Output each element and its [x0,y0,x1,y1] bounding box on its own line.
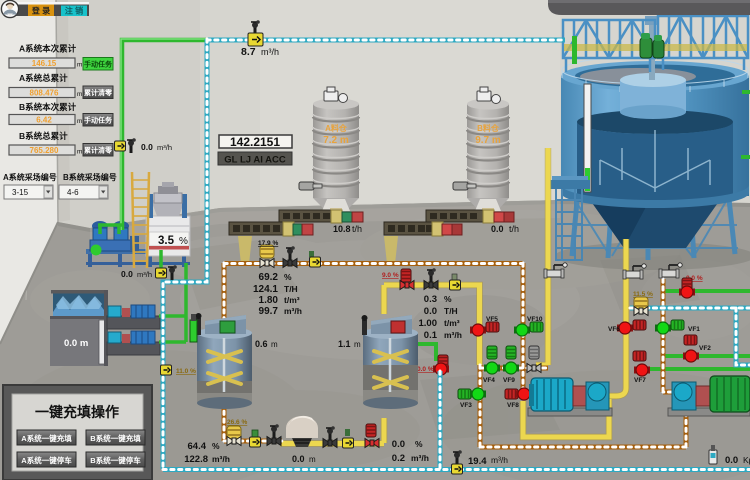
svg-text:A系统一键充填: A系统一键充填 [21,433,72,443]
svg-text:m³/h: m³/h [212,454,230,464]
svg-text:0.0: 0.0 [141,142,153,152]
svg-text:m³/h: m³/h [261,47,279,57]
svg-text:t/h: t/h [352,224,362,234]
svg-text:B系统采场编号: B系统采场编号 [63,172,117,182]
svg-text:0.0: 0.0 [725,455,738,466]
svg-text:VF10: VF10 [527,316,543,323]
svg-text:B系统一键充填: B系统一键充填 [90,433,141,443]
svg-text:t/m³: t/m³ [284,295,300,305]
svg-text:808.476: 808.476 [30,89,59,98]
svg-text:m³/h: m³/h [444,330,462,340]
svg-text:累计清零: 累计清零 [84,88,113,97]
svg-text:m³/h: m³/h [491,455,508,465]
svg-text:3.5: 3.5 [158,235,175,247]
svg-text:%: % [444,294,452,304]
svg-text:9.7 m: 9.7 m [475,135,501,146]
svg-text:VF4: VF4 [483,377,495,384]
svg-text:0.0 m: 0.0 m [64,338,88,349]
svg-text:6.42: 6.42 [36,116,52,125]
svg-text:A系统总累计: A系统总累计 [19,73,68,83]
svg-text:VF8: VF8 [507,402,519,409]
svg-text:T/H: T/H [444,306,458,316]
svg-text:B料仓: B料仓 [477,123,500,133]
svg-text:64.4: 64.4 [188,441,207,452]
svg-text:0.0: 0.0 [424,306,437,317]
svg-text:%: % [415,439,423,449]
svg-text:A系统本次累计: A系统本次累计 [19,44,77,54]
svg-text:17.9 %: 17.9 % [258,240,278,247]
svg-text:11.0 %: 11.0 % [176,368,196,375]
svg-text:m³/h: m³/h [411,453,429,463]
svg-text:VF6: VF6 [608,326,620,333]
svg-text:t/h: t/h [509,224,519,234]
svg-text:0.0: 0.0 [392,439,405,450]
svg-text:%: % [212,441,220,451]
svg-text:9.0 %: 9.0 % [382,272,399,279]
svg-text:B系统总累计: B系统总累计 [19,131,68,141]
svg-text:122.8: 122.8 [184,454,208,465]
svg-text:VF9: VF9 [503,377,515,384]
svg-text:69.2: 69.2 [259,272,279,283]
svg-text:0.6: 0.6 [255,339,268,349]
svg-text:m³/h: m³/h [137,270,152,279]
svg-text:142.2151: 142.2151 [230,135,280,149]
svg-text:T/H: T/H [284,284,298,294]
svg-text:765.280: 765.280 [30,146,59,155]
svg-text:手动任务: 手动任务 [84,116,113,125]
svg-text:B系统本次累计: B系统本次累计 [19,102,77,112]
svg-text:A料仓: A料仓 [325,123,348,133]
svg-text:登 录: 登 录 [31,6,50,16]
svg-text:一键充填操作: 一键充填操作 [35,404,119,420]
svg-text:26.6 %: 26.6 % [227,419,247,426]
svg-text:Kp: Kp [743,455,750,465]
svg-text:0.0: 0.0 [292,454,305,464]
svg-text:7.2 m: 7.2 m [323,135,349,146]
svg-text:VF2: VF2 [699,345,711,352]
svg-text:124.1: 124.1 [253,284,278,295]
svg-text:VF7: VF7 [634,377,646,384]
svg-text:4-6: 4-6 [67,188,79,197]
svg-text:19.4: 19.4 [468,456,487,467]
svg-text:VF1: VF1 [688,326,700,333]
svg-text:VF3: VF3 [460,402,472,409]
svg-text:10.8: 10.8 [333,224,351,234]
svg-text:1.80: 1.80 [259,295,279,306]
svg-text:0.3: 0.3 [424,294,437,305]
svg-text:0.0 %: 0.0 % [417,366,434,373]
svg-text:0.1: 0.1 [424,330,438,341]
svg-text:%: % [179,236,188,247]
svg-text:m: m [309,455,316,464]
svg-text:1.00: 1.00 [419,318,438,329]
svg-text:m: m [354,340,361,349]
svg-text:手动任务: 手动任务 [84,60,113,69]
svg-text:注 销: 注 销 [65,6,83,16]
svg-text:B系统一键停车: B系统一键停车 [90,455,141,465]
svg-text:%: % [284,272,292,282]
svg-text:146.15: 146.15 [32,59,57,68]
svg-text:m³/h: m³/h [284,306,302,316]
svg-text:0.0: 0.0 [121,269,133,279]
svg-text:GL LJ AI ACC: GL LJ AI ACC [224,155,286,166]
svg-text:A系统采场编号: A系统采场编号 [3,172,57,182]
svg-text:VF5: VF5 [486,316,498,323]
svg-text:1.1: 1.1 [338,339,351,349]
svg-text:累计清零: 累计清零 [84,146,113,155]
svg-text:0.0: 0.0 [491,224,504,234]
svg-text:m³/h: m³/h [157,143,172,152]
svg-text:8.7: 8.7 [241,46,256,58]
svg-text:m: m [271,340,278,349]
svg-text:99.7: 99.7 [259,306,279,317]
svg-text:t/m³: t/m³ [444,318,460,328]
svg-text:3-15: 3-15 [12,188,29,197]
svg-text:0.2: 0.2 [392,453,405,464]
svg-text:A系统一键停车: A系统一键停车 [21,455,72,465]
